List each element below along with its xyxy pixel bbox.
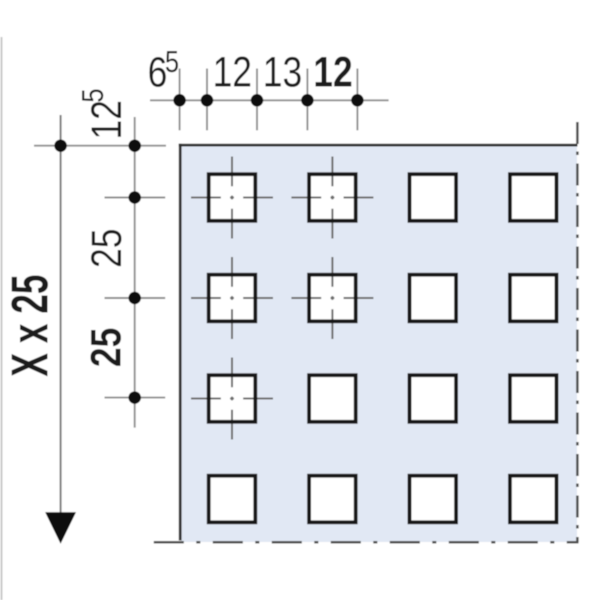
svg-text:5: 5 <box>165 45 179 80</box>
svg-text:25: 25 <box>82 328 130 367</box>
svg-text:5: 5 <box>76 88 111 102</box>
svg-text:12: 12 <box>213 48 252 96</box>
svg-text:13: 13 <box>263 48 302 96</box>
svg-text:12: 12 <box>83 100 131 139</box>
svg-text:25: 25 <box>83 228 131 267</box>
svg-text:12: 12 <box>313 48 352 96</box>
svg-text:X x 25: X x 25 <box>2 274 59 376</box>
